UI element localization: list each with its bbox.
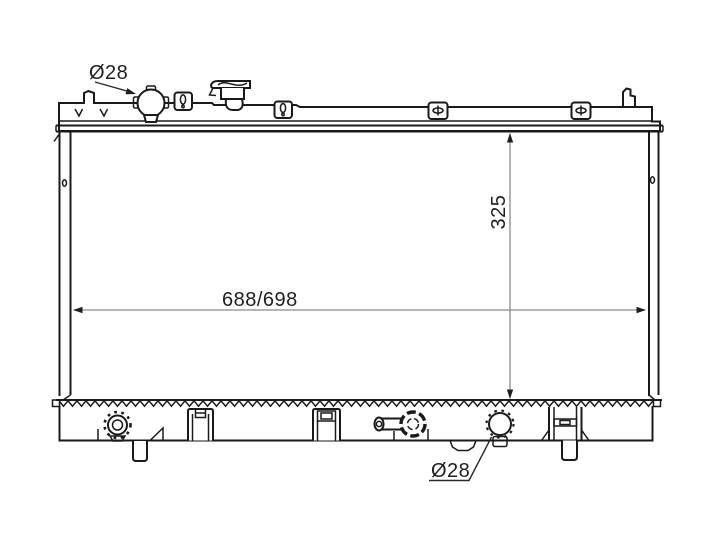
width-arrow-left [73,307,83,313]
retainer-clip-3 [429,103,448,120]
bottom-tank-body [60,406,653,441]
retainer-clip-1 [175,93,193,111]
bracket-tab-right [623,89,635,108]
top-port-diameter-label: Ø28 [89,62,128,84]
mounting-peg-right [562,441,577,461]
core-seam-serration [56,400,662,408]
top-port-callout: Ø28 [89,62,136,94]
height-arrow-bottom [507,390,513,400]
top-tank [56,81,663,132]
bottom-port-callout: Ø28 [429,437,492,482]
retainer-clip-2 [275,102,293,119]
height-arrow-top [507,133,513,143]
width-dimension-label: 688/698 [222,289,298,311]
right-side-channel [649,132,659,400]
bracket-c [542,407,590,460]
bottom-port-diameter-label: Ø28 [431,460,470,482]
left-side-channel [54,132,71,400]
height-dimension: 325 [488,133,513,399]
oil-cooler-fitting [375,412,429,441]
drain-plug [105,412,131,441]
bracket-b [313,409,340,441]
support-gusset [150,428,163,441]
radiator-drawing: 688/698 325 Ø28 Ø28 [0,0,720,540]
width-dimension: 688/698 [73,289,646,313]
hex-bump [450,441,476,451]
width-arrow-right [637,307,647,313]
retainer-clip-4 [572,103,591,120]
height-dimension-label: 325 [488,195,510,230]
bottom-tank [53,400,663,461]
diagram-canvas: 688/698 325 Ø28 Ø28 [0,0,720,540]
mounting-peg-left [133,441,147,461]
bracket-a [188,409,213,441]
